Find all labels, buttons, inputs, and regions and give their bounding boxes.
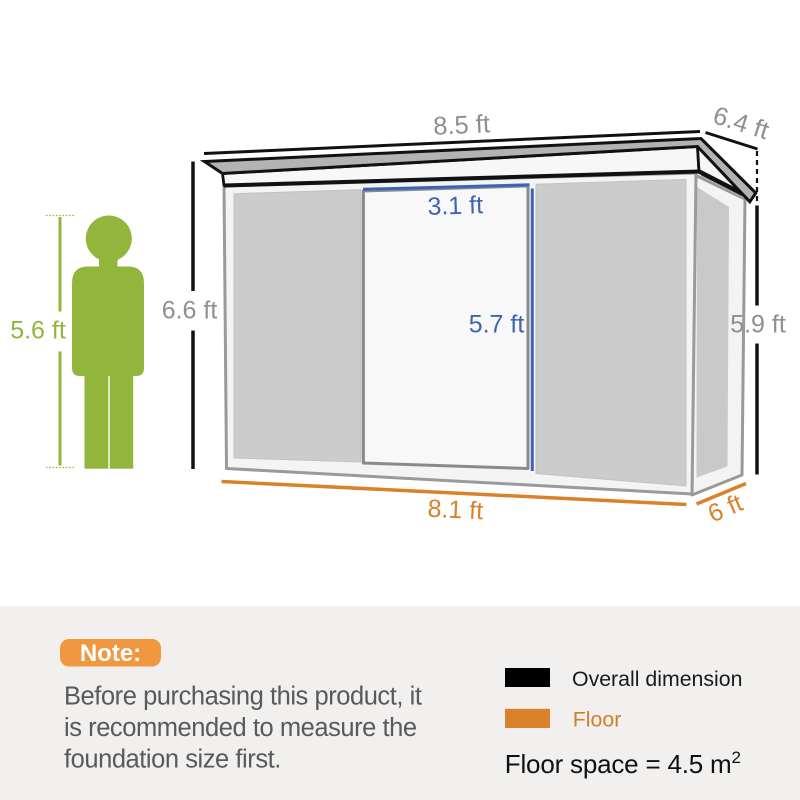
svg-text:Floor space = 4.5 m2: Floor space = 4.5 m2 — [505, 748, 741, 779]
svg-text:5.6 ft: 5.6 ft — [10, 317, 66, 345]
svg-text:Floor: Floor — [573, 708, 622, 732]
svg-text:8.5 ft: 8.5 ft — [433, 110, 491, 141]
svg-text:5.7 ft: 5.7 ft — [469, 311, 525, 339]
svg-text:foundation size first.: foundation size first. — [64, 746, 281, 774]
svg-text:8.1 ft: 8.1 ft — [427, 495, 484, 526]
svg-text:3.1 ft: 3.1 ft — [427, 191, 483, 221]
svg-text:Note:: Note: — [80, 640, 141, 667]
svg-text:Overall dimension: Overall dimension — [572, 667, 742, 691]
svg-text:6.6 ft: 6.6 ft — [162, 297, 218, 325]
svg-text:is recommended to measure the: is recommended to measure the — [64, 714, 417, 742]
svg-text:Before purchasing this product: Before purchasing this product, it — [64, 683, 422, 711]
svg-text:5.9 ft: 5.9 ft — [730, 311, 786, 339]
